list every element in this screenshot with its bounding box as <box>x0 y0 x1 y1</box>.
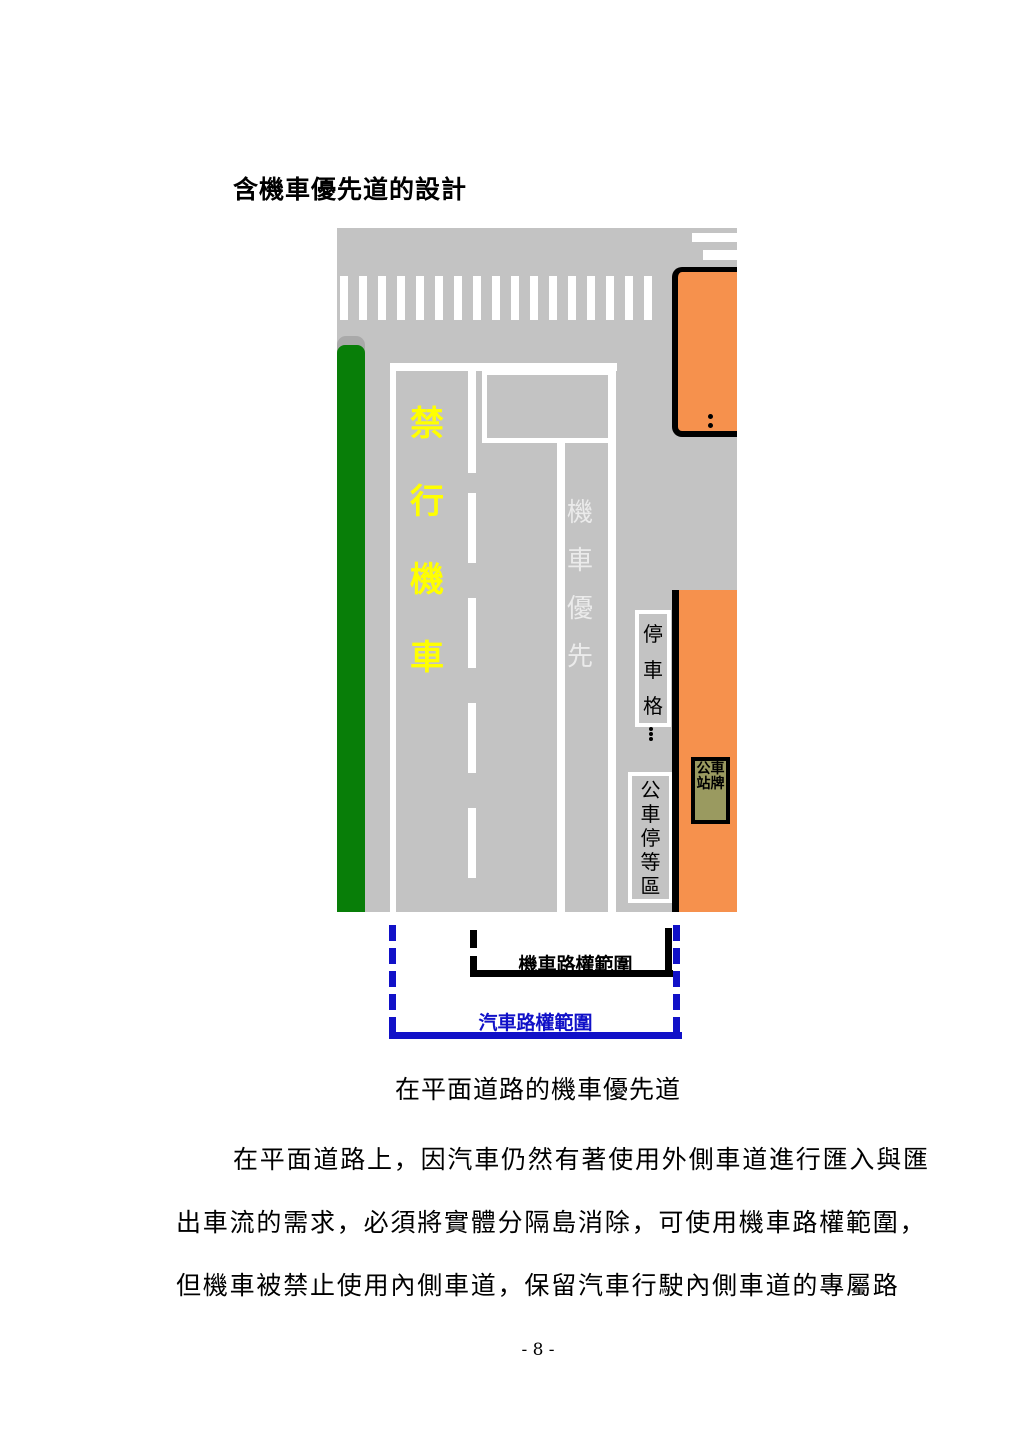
parking-ellipsis-dots <box>647 726 655 741</box>
section-heading: 含機車優先道的設計 <box>233 170 467 206</box>
lane-divider-dashed-segment <box>468 493 476 912</box>
body-paragraph-line-2: 出車流的需求，必須將實體分隔島消除，可使用機車路權範圍， <box>176 1203 922 1239</box>
motorcycle-waiting-box <box>482 370 616 443</box>
crosswalk-stripes <box>340 276 657 320</box>
parking-space-label: 停車格 <box>639 614 667 724</box>
body-paragraph-line-1: 在平面道路上，因汽車仍然有著使用外側車道進行匯入與匯 <box>176 1140 979 1176</box>
bus-stop-sign: 公車站牌 <box>691 757 730 824</box>
lane-divider-solid-segment <box>468 363 476 473</box>
figure-caption: 在平面道路的機車優先道 <box>176 1070 900 1106</box>
bus-wait-area-label: 公車停等區 <box>632 776 669 898</box>
sidewalk-lower-block <box>672 590 737 912</box>
sidewalk-ellipsis-dots <box>706 410 715 437</box>
motorcycle-priority-lane-diagram: 禁行機車 機車優先 停車格 公車停等區 公車站牌 機車路權範圍 汽車路權範圍 <box>337 228 737 1040</box>
moto-right-of-way-label: 機車路權範圍 <box>474 950 677 977</box>
side-street-gap-upper <box>692 233 737 242</box>
parking-space-box: 停車格 <box>635 610 671 727</box>
car-right-of-way-label: 汽車路權範圍 <box>389 1008 682 1035</box>
sidewalk-upper-block <box>672 267 737 437</box>
inner-lane-edge-line <box>390 363 396 912</box>
priority-lane-label: 機車優先 <box>567 489 593 681</box>
prohibited-lane-label: 禁行機車 <box>410 385 444 697</box>
median-green-strip <box>337 345 365 912</box>
priority-lane-left-line <box>557 440 565 912</box>
outer-lane-edge-line <box>608 363 616 912</box>
bus-stop-sign-label: 公車站牌 <box>695 761 726 792</box>
side-street-gap-lower <box>703 250 737 260</box>
document-page: 含機車優先道的設計 禁行機車 機車優先 停車格 公車停等區 公 <box>0 0 1024 1449</box>
page-number: - 8 - <box>176 1340 900 1360</box>
body-paragraph-line-3: 但機車被禁止使用內側車道，保留汽車行駛內側車道的專屬路 <box>176 1266 922 1302</box>
bus-wait-area-box: 公車停等區 <box>628 772 673 903</box>
